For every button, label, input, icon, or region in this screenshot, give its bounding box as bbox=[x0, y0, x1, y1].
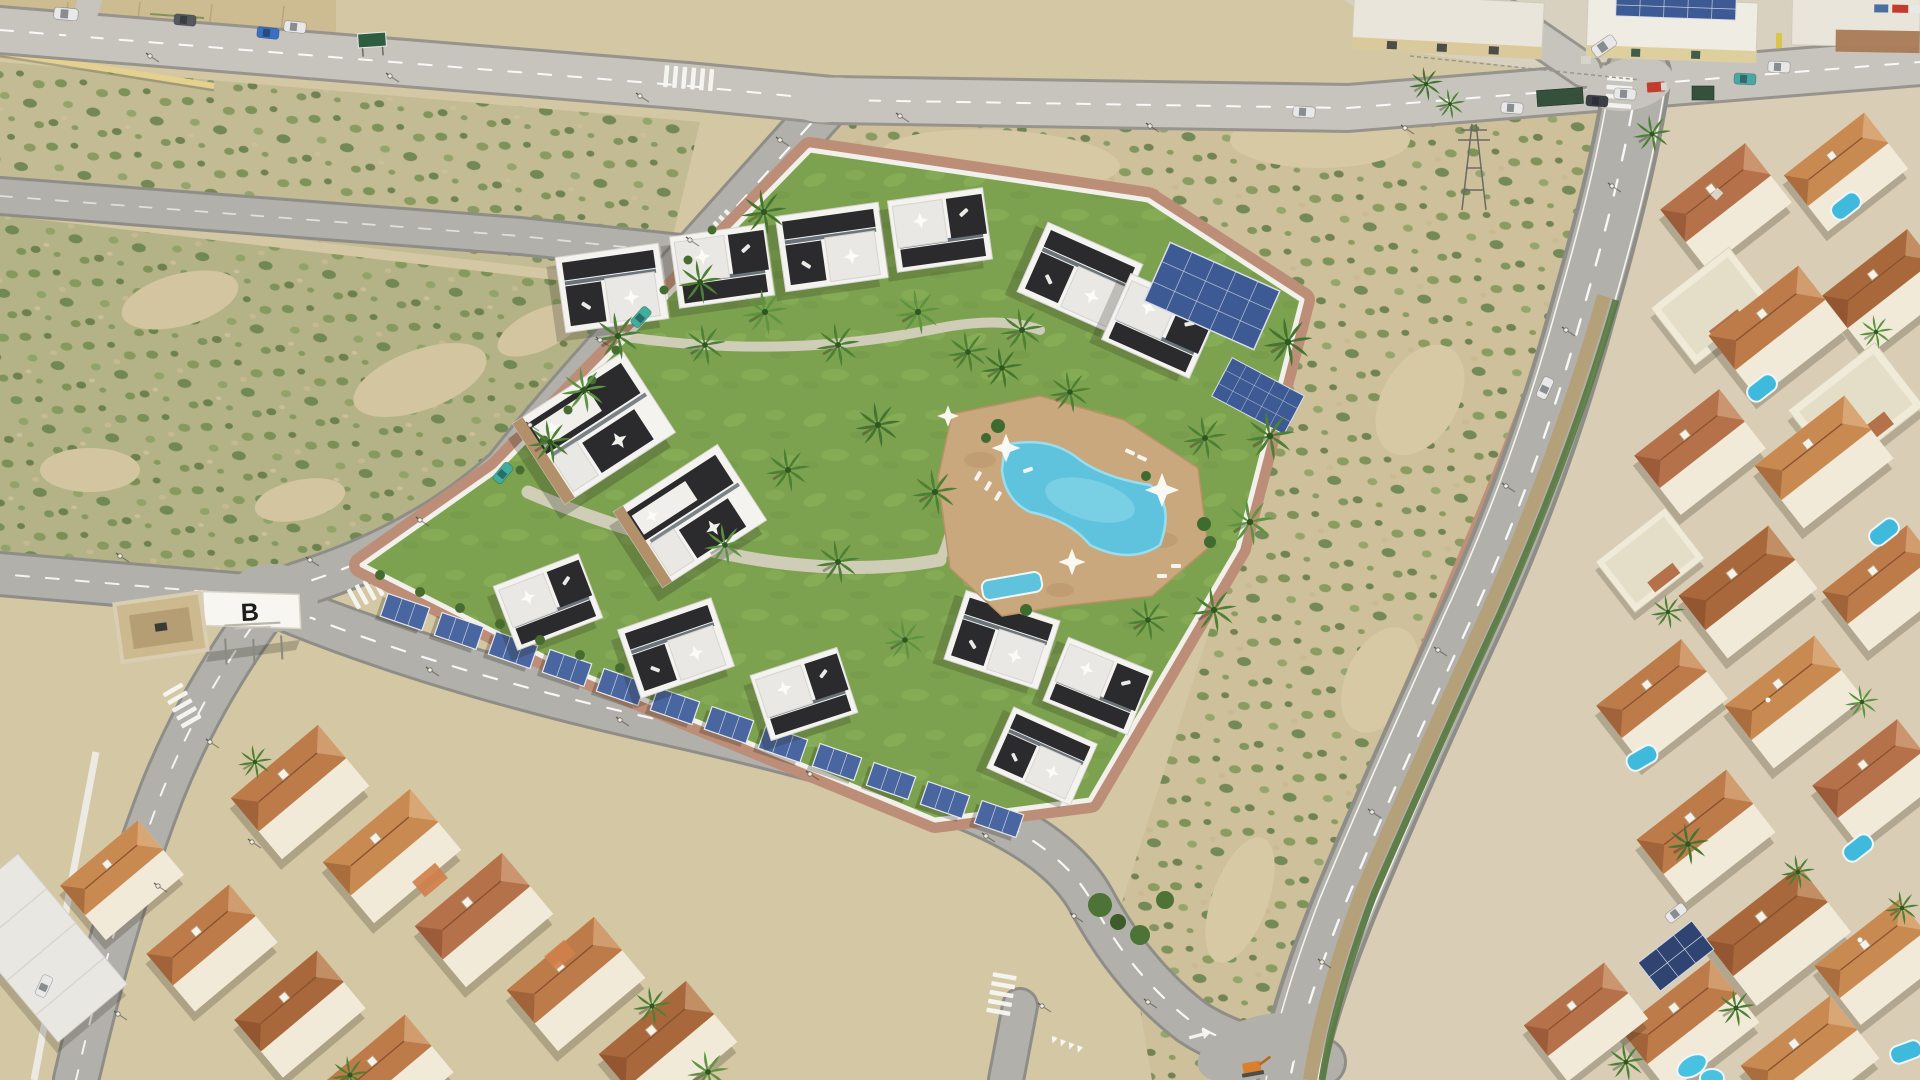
car bbox=[1293, 106, 1316, 119]
car bbox=[1501, 102, 1524, 115]
apartment-block bbox=[545, 243, 670, 342]
car bbox=[283, 20, 306, 33]
aerial-photo: B bbox=[0, 0, 1920, 1080]
yellow-sign bbox=[1776, 33, 1782, 48]
road-top-left-stub bbox=[76, 0, 90, 44]
warehouse bbox=[1352, 0, 1545, 59]
aerial-scene: B bbox=[0, 0, 1920, 1080]
apartment-block bbox=[765, 202, 890, 301]
road-south-stub bbox=[1006, 1006, 1020, 1080]
warehouse bbox=[1791, 0, 1920, 53]
car bbox=[174, 14, 197, 27]
satellite-dish bbox=[1766, 698, 1771, 703]
apartment-block bbox=[660, 224, 776, 318]
satellite-dish bbox=[1858, 938, 1863, 943]
car bbox=[1586, 95, 1609, 108]
green-container bbox=[1536, 87, 1583, 106]
red-truck bbox=[1647, 81, 1668, 92]
kiosk bbox=[1581, 56, 1591, 64]
green-container bbox=[1692, 86, 1714, 100]
car bbox=[53, 7, 78, 21]
car bbox=[1768, 61, 1791, 73]
car bbox=[1734, 73, 1757, 85]
car bbox=[256, 26, 279, 39]
car bbox=[1614, 88, 1637, 101]
apartment-block bbox=[878, 188, 994, 282]
walled-plot bbox=[114, 592, 207, 661]
